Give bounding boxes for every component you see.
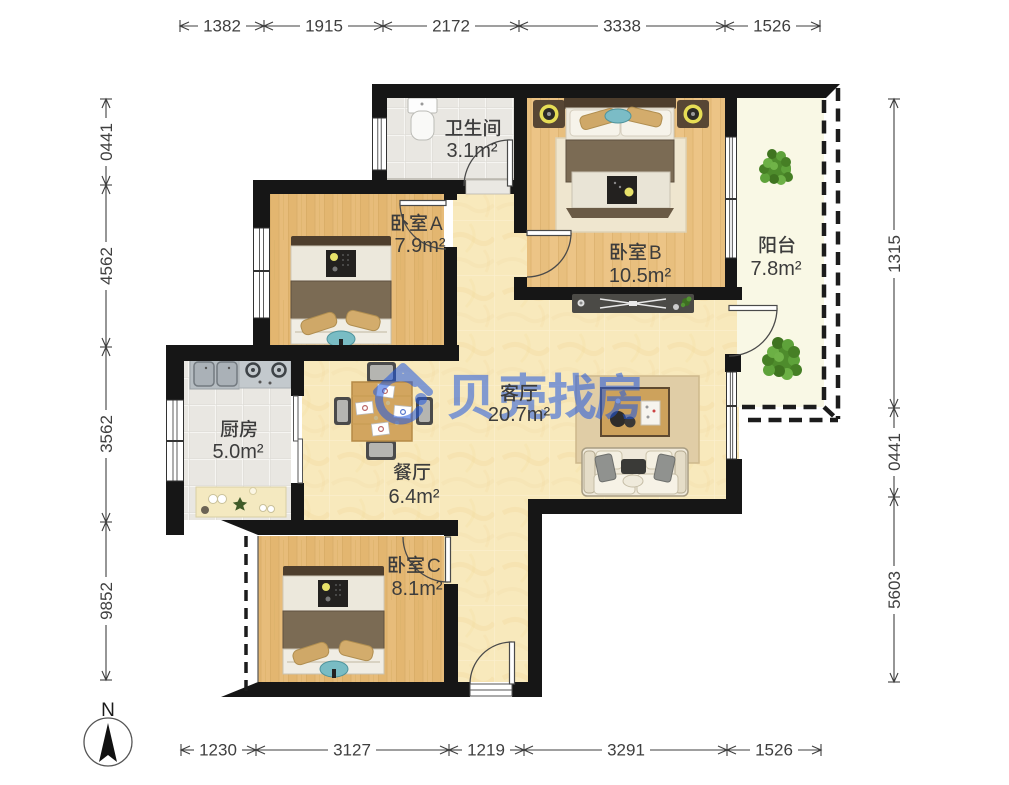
svg-text:4562: 4562 (97, 247, 116, 285)
svg-text:3562: 3562 (97, 415, 116, 453)
svg-text:C: C (427, 556, 441, 577)
svg-text:5.0m²: 5.0m² (212, 441, 263, 463)
svg-text:2172: 2172 (432, 17, 470, 36)
svg-text:6.4m²: 6.4m² (388, 486, 439, 508)
svg-text:7.8m²: 7.8m² (750, 258, 801, 280)
svg-text:0441: 0441 (885, 433, 904, 471)
svg-text:3127: 3127 (333, 741, 371, 760)
svg-text:1315: 1315 (885, 235, 904, 273)
svg-text:A: A (430, 214, 443, 235)
svg-text:10.5m²: 10.5m² (609, 265, 672, 287)
svg-text:0441: 0441 (97, 123, 116, 161)
svg-text:1915: 1915 (305, 17, 343, 36)
svg-text:3291: 3291 (607, 741, 645, 760)
svg-text:3.1m²: 3.1m² (446, 140, 497, 162)
svg-text:1230: 1230 (199, 741, 237, 760)
svg-text:1219: 1219 (467, 741, 505, 760)
svg-text:7.9m²: 7.9m² (394, 235, 445, 257)
svg-text:3338: 3338 (603, 17, 641, 36)
svg-text:20.7m²: 20.7m² (488, 404, 551, 426)
svg-text:1382: 1382 (203, 17, 241, 36)
svg-text:1526: 1526 (755, 741, 793, 760)
svg-text:1526: 1526 (753, 17, 791, 36)
svg-text:B: B (649, 243, 662, 264)
svg-text:5603: 5603 (885, 571, 904, 609)
svg-text:9852: 9852 (97, 582, 116, 620)
svg-text:8.1m²: 8.1m² (391, 578, 442, 600)
